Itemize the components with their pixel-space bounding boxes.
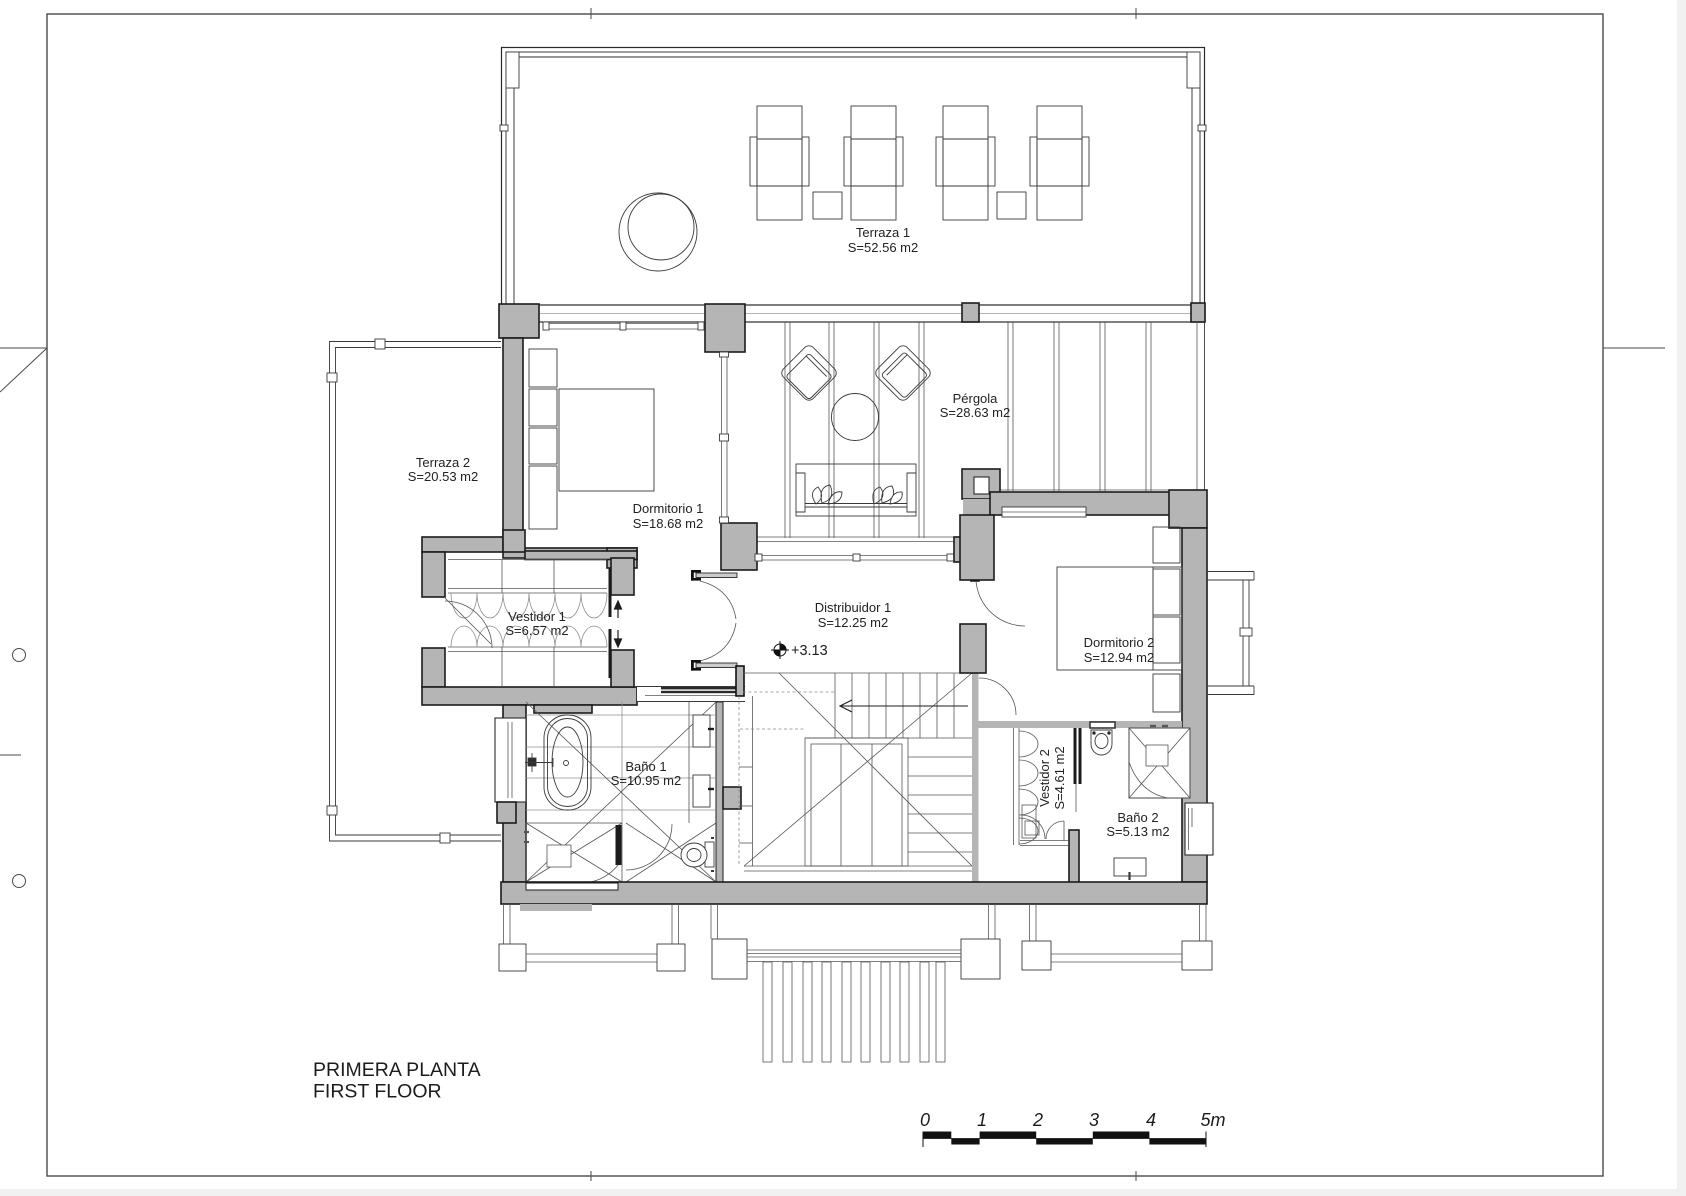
svg-text:Vestidor 2: Vestidor 2: [1037, 749, 1052, 807]
svg-text:S=10.95 m2: S=10.95 m2: [611, 773, 681, 788]
svg-text:1: 1: [977, 1110, 987, 1130]
svg-text:S=5.13 m2: S=5.13 m2: [1106, 824, 1169, 839]
svg-text:5m: 5m: [1200, 1110, 1225, 1130]
svg-text:Dormitorio 1: Dormitorio 1: [633, 501, 704, 516]
svg-text:Baño 1: Baño 1: [625, 759, 666, 774]
svg-text:S=20.53 m2: S=20.53 m2: [408, 469, 478, 484]
svg-text:S=4.61 m2: S=4.61 m2: [1052, 746, 1067, 809]
svg-text:+3.13: +3.13: [791, 643, 828, 659]
svg-text:Vestidor 1: Vestidor 1: [508, 609, 566, 624]
svg-text:S=18.68 m2: S=18.68 m2: [633, 516, 703, 531]
svg-text:Terraza 1: Terraza 1: [856, 225, 910, 240]
svg-text:Distribuidor 1: Distribuidor 1: [815, 600, 892, 615]
svg-text:Dormitorio 2: Dormitorio 2: [1084, 635, 1155, 650]
svg-text:S=52.56 m2: S=52.56 m2: [848, 240, 918, 255]
svg-text:2: 2: [1032, 1110, 1043, 1130]
svg-text:3: 3: [1089, 1110, 1099, 1130]
svg-text:Terraza 2: Terraza 2: [416, 455, 470, 470]
svg-text:Pérgola: Pérgola: [953, 391, 999, 406]
svg-text:PRIMERA PLANTA: PRIMERA PLANTA: [313, 1059, 481, 1081]
svg-text:S=12.94 m2: S=12.94 m2: [1084, 650, 1154, 665]
svg-text:FIRST FLOOR: FIRST FLOOR: [313, 1081, 442, 1103]
svg-text:4: 4: [1146, 1110, 1156, 1130]
svg-text:S=6.57 m2: S=6.57 m2: [505, 623, 568, 638]
svg-text:S=12.25 m2: S=12.25 m2: [818, 615, 888, 630]
svg-text:S=28.63 m2: S=28.63 m2: [940, 405, 1010, 420]
svg-text:0: 0: [920, 1110, 930, 1130]
svg-text:Baño 2: Baño 2: [1117, 810, 1158, 825]
